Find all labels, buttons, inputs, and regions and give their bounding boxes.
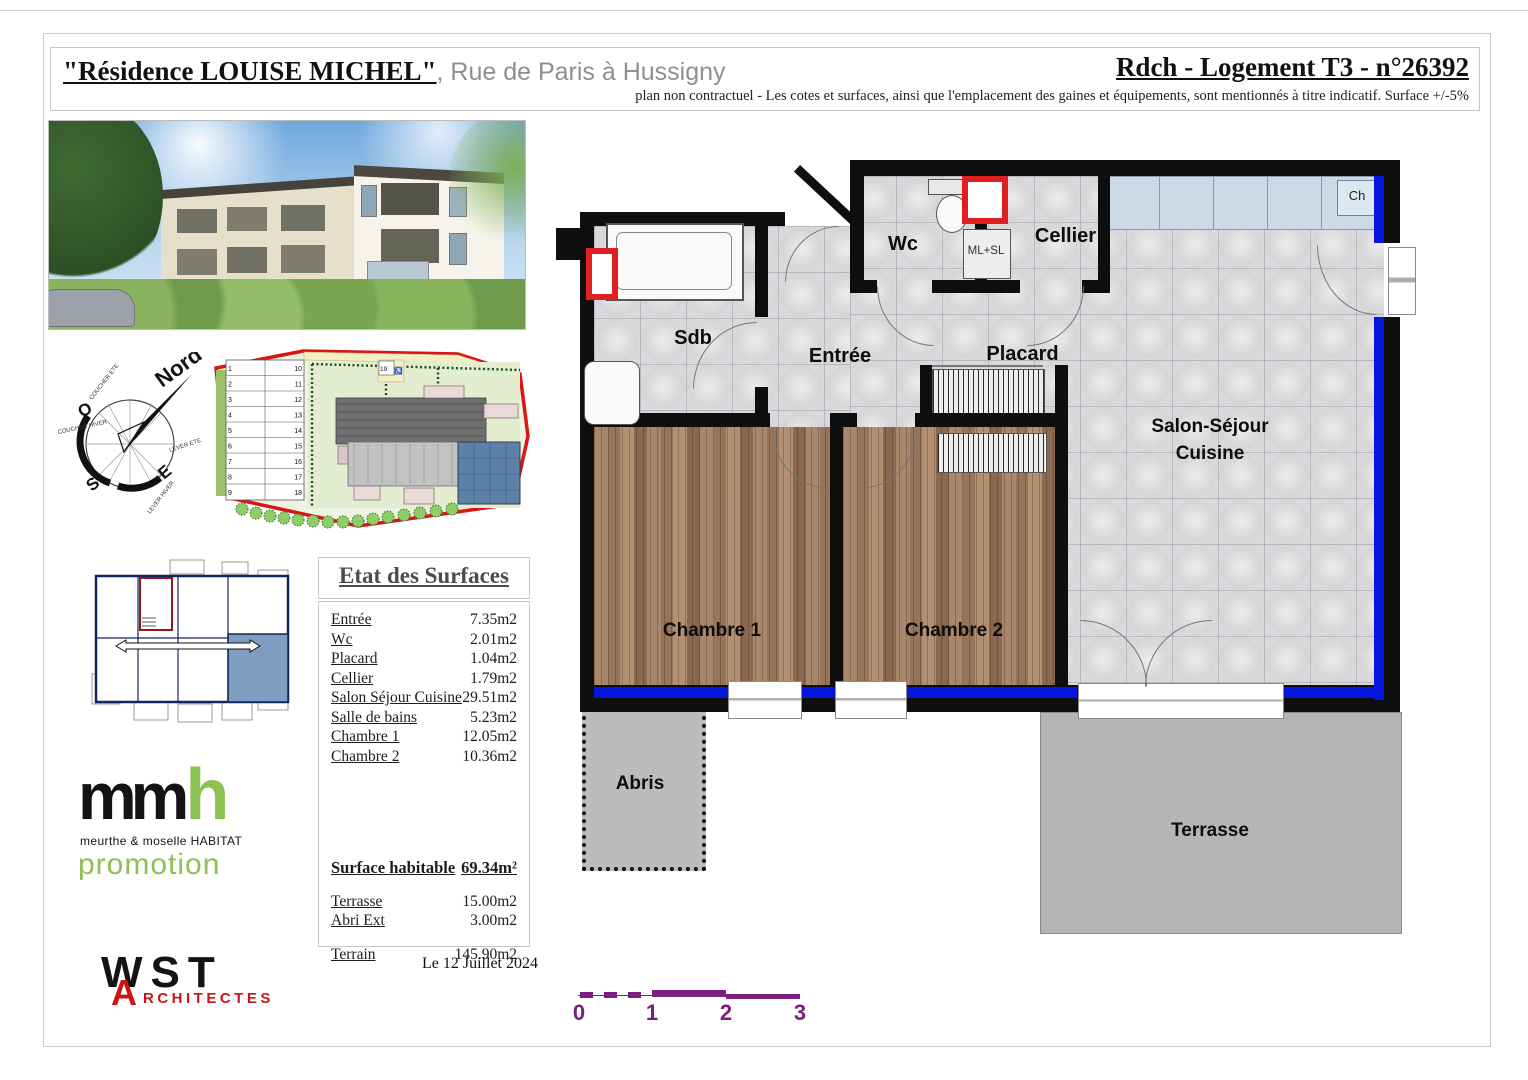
svg-text:8: 8 — [228, 475, 232, 482]
mmh-logo-promotion: promotion — [78, 848, 220, 882]
water-heater-label: Ch — [1337, 188, 1377, 203]
room-label-terrasse: Terrasse — [1145, 820, 1275, 842]
room-label-salon: Salon-Séjour Cuisine — [1115, 413, 1305, 467]
window-glazing — [1280, 687, 1375, 698]
svg-text:7: 7 — [228, 459, 232, 466]
svg-text:9: 9 — [228, 490, 232, 497]
bathtub — [606, 223, 744, 301]
balcony — [281, 205, 325, 231]
surface-value: 29.51m2 — [462, 688, 517, 708]
balcony — [381, 183, 439, 215]
wall — [1055, 365, 1068, 685]
room-label-salon-line1: Salon-Séjour — [1115, 413, 1305, 440]
bathtub-inner — [616, 232, 732, 290]
surface-value: 12.05m2 — [462, 727, 517, 747]
parking-numbers-right: 1011 1213 1415 1617 18 — [294, 366, 302, 497]
surface-row: Wc2.01m2 — [331, 630, 517, 650]
entry-door-leaf — [794, 165, 857, 225]
parking-numbers-left: 12 34 56 78 9 — [228, 366, 232, 497]
plan-date: Le 12 Juillet 2024 — [395, 955, 565, 973]
window-glazing — [798, 687, 837, 698]
accessible-stall-number: 19 — [380, 366, 388, 373]
compass-rose: Nord O S E COUCHER ETE COUCHER HIVER LEV… — [58, 352, 213, 530]
compass-needle-north — [124, 374, 192, 452]
room-label-chambre1: Chambre 1 — [646, 620, 778, 642]
balcony — [381, 229, 439, 263]
surfaces-title: Etat des Surfaces — [319, 563, 529, 589]
window-glazing — [594, 687, 730, 698]
svg-text:2: 2 — [228, 382, 232, 389]
mmh-logo-mm: mm — [78, 759, 183, 833]
room-label-cellier: Cellier — [1008, 225, 1123, 248]
surface-label: Chambre 1 — [331, 727, 399, 747]
room-label-sdb: Sdb — [648, 327, 738, 350]
window-glazing — [1374, 176, 1384, 243]
wall — [920, 365, 932, 427]
room-label-abris: Abris — [588, 773, 692, 795]
chambre2-window — [835, 681, 907, 719]
residence-title-quoted: "Résidence LOUISE MICHEL" — [63, 56, 437, 86]
surface-row: Cellier1.79m2 — [331, 669, 517, 689]
balcony — [227, 247, 267, 273]
svg-text:12: 12 — [294, 397, 302, 404]
wall — [850, 176, 864, 293]
chambre1-window — [728, 681, 802, 719]
window — [361, 185, 377, 217]
compass-thick-arc-south — [118, 478, 160, 488]
room-label-chambre2: Chambre 2 — [888, 620, 1020, 642]
surface-value: 10.36m2 — [462, 747, 517, 767]
key-plan — [82, 554, 302, 726]
surface-value: 7.35m2 — [470, 610, 517, 630]
surface-value: 2.01m2 — [470, 630, 517, 650]
window-glazing — [903, 687, 1077, 698]
unit-title: Rdch - Logement T3 - n°26392 — [1116, 52, 1469, 83]
compass-label-coucher-ete: COUCHER ETE — [89, 363, 121, 401]
scale-dash — [580, 992, 593, 998]
surface-row: Chambre 112.05m2 — [331, 727, 517, 747]
window-glazing — [1374, 317, 1384, 700]
wall — [1082, 280, 1110, 293]
residence-title: "Résidence LOUISE MICHEL", Rue de Paris … — [63, 56, 726, 87]
mmh-logo-h: h — [185, 755, 229, 835]
scale-segment-2-3 — [726, 994, 800, 999]
wall — [915, 413, 1068, 427]
abri-value: 3.00m2 — [470, 911, 517, 931]
washer-dryer-label: ML+SL — [959, 245, 1013, 257]
plan-sheet: "Résidence LOUISE MICHEL", Rue de Paris … — [0, 0, 1528, 1080]
svg-text:15: 15 — [294, 444, 302, 451]
wall — [1384, 317, 1400, 712]
surface-row: Chambre 210.36m2 — [331, 747, 517, 767]
balcony — [227, 207, 267, 231]
scale-number-2: 2 — [719, 1000, 733, 1026]
hedge-left — [216, 370, 226, 496]
wall — [932, 280, 1020, 293]
building-rendering — [48, 120, 526, 330]
surfaces-title-box: Etat des Surfaces — [318, 557, 530, 599]
wst-logo: WST A RCHITECTES — [95, 948, 285, 1030]
surfaces-table: Entrée7.35m2 Wc2.01m2 Placard1.04m2 Cell… — [318, 601, 530, 947]
room-label-entree: Entrée — [775, 345, 905, 368]
scale-dash — [628, 992, 641, 998]
surface-label: Salon Séjour Cuisine — [331, 688, 462, 708]
duct-gaine-wc — [962, 176, 1008, 224]
scale-number-3: 3 — [793, 1000, 807, 1026]
disclaimer: plan non contractuel - Les cotes et surf… — [635, 88, 1469, 105]
placard-hatch — [932, 369, 1045, 415]
window — [449, 233, 467, 265]
surface-row: Abri Ext3.00m2 — [331, 911, 517, 931]
abri-label: Abri Ext — [331, 911, 385, 931]
wall — [1384, 160, 1400, 243]
scale-number-1: 1 — [645, 1000, 659, 1026]
room-label-wc: Wc — [873, 233, 933, 256]
wall — [830, 413, 857, 427]
compass-label-o: O — [75, 398, 96, 421]
car — [48, 289, 135, 327]
mmh-logo-subtitle: meurthe & moselle HABITAT — [80, 834, 242, 848]
floor-plan: Ch — [580, 155, 1410, 945]
compass-needle-tail — [118, 422, 144, 452]
scale-segment-1-2 — [652, 990, 726, 997]
svg-text:4: 4 — [228, 413, 232, 420]
top-rule — [0, 10, 1528, 11]
wst-logo-rest: RCHITECTES — [143, 990, 274, 1007]
chambre2-wardrobe-hatch — [937, 433, 1047, 473]
surface-habitable-label: Surface habitable — [331, 858, 455, 878]
balcony — [281, 245, 325, 273]
svg-text:16: 16 — [294, 459, 302, 466]
mmh-logo: mmh meurthe & moselle HABITAT promotion — [78, 762, 293, 902]
side-door-panel — [1388, 247, 1416, 315]
surface-label: Salle de bains — [331, 708, 417, 728]
terrace-door-sill — [1078, 683, 1284, 719]
room-label-salon-line2: Cuisine — [1115, 440, 1305, 467]
surface-row: Salon Séjour Cuisine29.51m2 — [331, 688, 517, 708]
surface-row: Terrasse15.00m2 — [331, 892, 517, 912]
header-bar: "Résidence LOUISE MICHEL", Rue de Paris … — [50, 47, 1480, 111]
surface-habitable-value: 69.34m² — [461, 858, 517, 878]
sdb-washbasin — [584, 361, 640, 425]
svg-text:5: 5 — [228, 428, 232, 435]
svg-text:13: 13 — [294, 413, 302, 420]
surface-value: 5.23m2 — [470, 708, 517, 728]
surface-label: Wc — [331, 630, 353, 650]
svg-text:3: 3 — [228, 397, 232, 404]
svg-text:1: 1 — [228, 366, 232, 373]
scale-bar: 0 1 2 3 — [578, 982, 804, 1026]
balcony — [177, 209, 217, 233]
svg-text:17: 17 — [294, 475, 302, 482]
building-footprint — [336, 386, 520, 504]
surface-label: Cellier — [331, 669, 373, 689]
terrasse-label: Terrasse — [331, 892, 382, 912]
surface-label: Entrée — [331, 610, 371, 630]
duct-gaine-sdb — [586, 248, 618, 300]
surface-value: 1.79m2 — [470, 669, 517, 689]
wheelchair-icon: ♿ — [394, 366, 403, 375]
svg-text:18: 18 — [294, 490, 302, 497]
surface-row: Entrée7.35m2 — [331, 610, 517, 630]
wst-logo-a: A — [111, 972, 137, 1014]
room-label-placard: Placard — [955, 343, 1090, 366]
svg-text:10: 10 — [294, 366, 302, 373]
surface-label: Placard — [331, 649, 377, 669]
tree-left — [48, 120, 163, 291]
wall — [830, 427, 843, 685]
residence-title-rest: , Rue de Paris à Hussigny — [437, 58, 726, 86]
scale-dash — [604, 992, 617, 998]
svg-text:11: 11 — [295, 382, 302, 389]
surface-row: Salle de bains5.23m2 — [331, 708, 517, 728]
terrasse-value: 15.00m2 — [462, 892, 517, 912]
site-plan: 12 34 56 78 9 1011 1213 1415 1617 18 19 … — [208, 346, 538, 536]
svg-text:6: 6 — [228, 444, 232, 451]
scale-number-0: 0 — [572, 1000, 586, 1026]
surface-label: Chambre 2 — [331, 747, 399, 767]
wall — [850, 280, 877, 293]
wall — [850, 160, 1400, 176]
wall — [755, 212, 768, 317]
wall — [556, 228, 580, 260]
terrain-label: Terrain — [331, 945, 376, 965]
svg-text:14: 14 — [294, 428, 302, 435]
compass-label-nord: Nord — [150, 352, 206, 392]
balcony — [177, 249, 217, 275]
surface-total-row: Surface habitable 69.34m² — [331, 858, 517, 878]
surface-value: 1.04m2 — [470, 649, 517, 669]
surface-row: Placard1.04m2 — [331, 649, 517, 669]
